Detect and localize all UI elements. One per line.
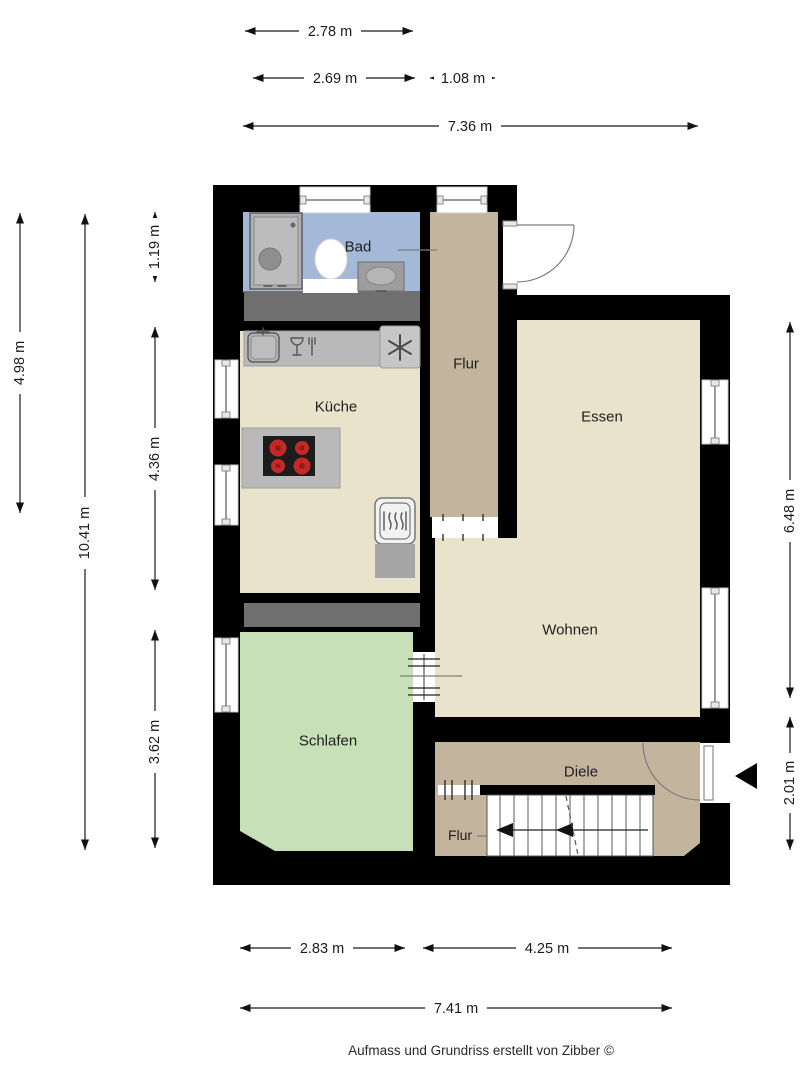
diele-flur-wall [480, 785, 655, 795]
dim-label: 4.36 m [147, 437, 163, 481]
window-nub [222, 360, 230, 366]
door-frame [503, 221, 517, 226]
window-top-1 [300, 187, 370, 213]
window-nub [222, 706, 230, 712]
dim-top-4: 7.36 m [243, 117, 698, 135]
passage-opening [432, 517, 498, 538]
footer-credit: Aufmass und Grundriss erstellt von Zibbe… [348, 1043, 614, 1058]
window-top-2 [437, 187, 487, 213]
room-label-wohnen: Wohnen [542, 622, 598, 639]
washbasin [358, 262, 404, 291]
window-nub [711, 588, 719, 594]
window-nub [222, 465, 230, 471]
room-label-kueche: Küche [315, 399, 358, 416]
room-label-flur-bottom: Flur [448, 827, 472, 843]
burner-center [299, 463, 305, 469]
dim-right-1: 6.48 m [781, 322, 799, 698]
room-label-essen: Essen [581, 409, 623, 426]
dim-left-4: 4.36 m [146, 327, 164, 590]
dim-label: 7.36 m [448, 119, 492, 135]
passage-flur-wohnen [432, 514, 498, 541]
dim-label: 2.83 m [300, 941, 344, 957]
dim-label: 1.19 m [147, 225, 163, 269]
dim-label: 2.69 m [313, 71, 357, 87]
burner-center [300, 446, 305, 451]
window-left-1 [215, 360, 238, 418]
window-nub [364, 196, 370, 204]
dim-label: 6.48 m [782, 489, 798, 533]
kitchen-counter [244, 326, 420, 368]
dim-label: 1.08 m [441, 71, 485, 87]
window-nub [711, 702, 719, 708]
dim-label: 4.25 m [525, 941, 569, 957]
shower [250, 213, 302, 289]
dim-bottom-3: 7.41 m [240, 999, 672, 1017]
stove [242, 428, 340, 488]
dim-label: 7.41 m [434, 1001, 478, 1017]
bad-duct-strip [244, 291, 420, 321]
diele-flur-door-opening [438, 785, 480, 795]
burner-center [275, 445, 281, 451]
oven-unit [375, 498, 415, 578]
dim-label: 2.01 m [782, 761, 798, 805]
window-right-2 [702, 588, 728, 708]
dim-top-1: 2.78 m [245, 22, 413, 40]
window-right-1 [702, 380, 728, 444]
dim-bottom-2: 4.25 m [423, 939, 672, 957]
toilet-base [303, 279, 358, 293]
burner-center [276, 464, 281, 469]
room-label-flur-top: Flur [453, 356, 479, 373]
toilet-bowl [315, 239, 347, 279]
dim-label: 10.41 m [77, 507, 93, 559]
dim-bottom-1: 2.83 m [240, 939, 405, 957]
room-label-schlafen: Schlafen [299, 733, 357, 750]
entrance-arrow-icon [735, 763, 757, 789]
dim-left-1: 4.98 m [11, 213, 29, 513]
dim-right-2: 2.01 m [781, 717, 799, 850]
door-opening [503, 223, 517, 287]
floor-plan-page: 2.78 m 2.69 m 1.08 m 7.36 m 4.98 m 10.41… [0, 0, 810, 1080]
window-nub [222, 638, 230, 644]
door-frame [503, 284, 517, 289]
room-label-diele: Diele [564, 764, 598, 781]
oven-cabinet [375, 544, 415, 578]
shower-head [291, 223, 296, 228]
window-nub [711, 438, 719, 444]
stairs [487, 795, 653, 856]
door-leaf-panel [704, 746, 713, 800]
dim-top-3: 1.08 m [430, 69, 495, 87]
dim-left-2: 10.41 m [76, 214, 94, 850]
window-nub [300, 196, 306, 204]
dim-label: 4.98 m [12, 341, 28, 385]
shower-drain [259, 248, 281, 270]
kitchen-sink-basin [251, 336, 276, 359]
window-left-3 [215, 638, 238, 712]
kueche-duct-strip [244, 603, 420, 627]
window-nub [711, 380, 719, 386]
window-left-2 [215, 465, 238, 525]
room-label-bad: Bad [345, 239, 372, 256]
window-nub [437, 196, 443, 204]
dim-left-3: 1.19 m [146, 212, 164, 282]
window-nub [481, 196, 487, 204]
washbasin-bowl [366, 267, 396, 285]
dim-top-2: 2.69 m [253, 69, 415, 87]
window-nub [222, 412, 230, 418]
floor-plan-svg: 2.78 m 2.69 m 1.08 m 7.36 m 4.98 m 10.41… [0, 0, 810, 1080]
outside-cutout [517, 185, 730, 295]
dim-label: 3.62 m [147, 720, 163, 764]
window-nub [222, 519, 230, 525]
dim-left-5: 3.62 m [146, 630, 164, 848]
dim-label: 2.78 m [308, 24, 352, 40]
